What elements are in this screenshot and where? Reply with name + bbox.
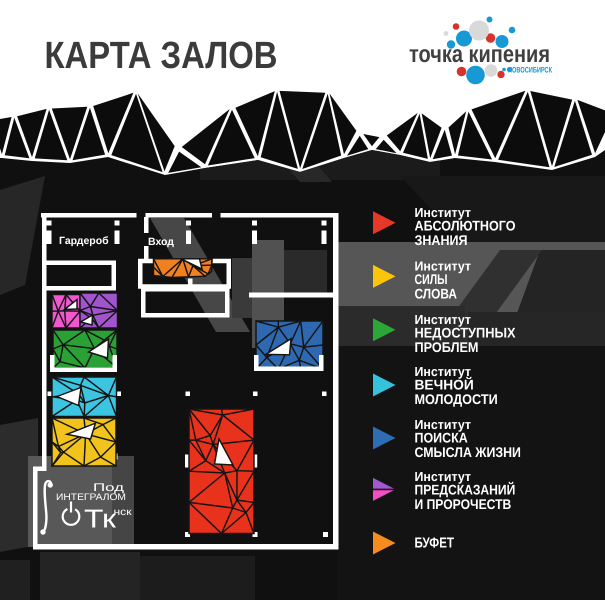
svg-text:НОВОСИБИРСК: НОВОСИБИРСК — [508, 66, 552, 75]
svg-text:ПРОБЛЕМ: ПРОБЛЕМ — [415, 339, 479, 355]
svg-text:И ПРОРОЧЕСТВ: И ПРОРОЧЕСТВ — [415, 496, 512, 512]
svg-text:нск: нск — [114, 507, 133, 518]
svg-text:ЗНАНИЯ: ЗНАНИЯ — [415, 232, 468, 248]
svg-text:Вход: Вход — [148, 236, 174, 248]
svg-text:КАРТА ЗАЛОВ: КАРТА ЗАЛОВ — [45, 35, 278, 77]
svg-text:СМЫСЛА ЖИЗНИ: СМЫСЛА ЖИЗНИ — [415, 444, 521, 460]
svg-text:МОЛОДОСТИ: МОЛОДОСТИ — [415, 391, 498, 407]
svg-text:СЛОВА: СЛОВА — [415, 285, 457, 301]
svg-text:Гардероб: Гардероб — [59, 235, 109, 247]
svg-text:Тк: Тк — [84, 504, 117, 534]
svg-text:точка кипения: точка кипения — [409, 41, 550, 68]
svg-text:БУФЕТ: БУФЕТ — [415, 536, 455, 552]
svg-text:ИНТЕГРАЛОМ: ИНТЕГРАЛОМ — [56, 492, 126, 503]
